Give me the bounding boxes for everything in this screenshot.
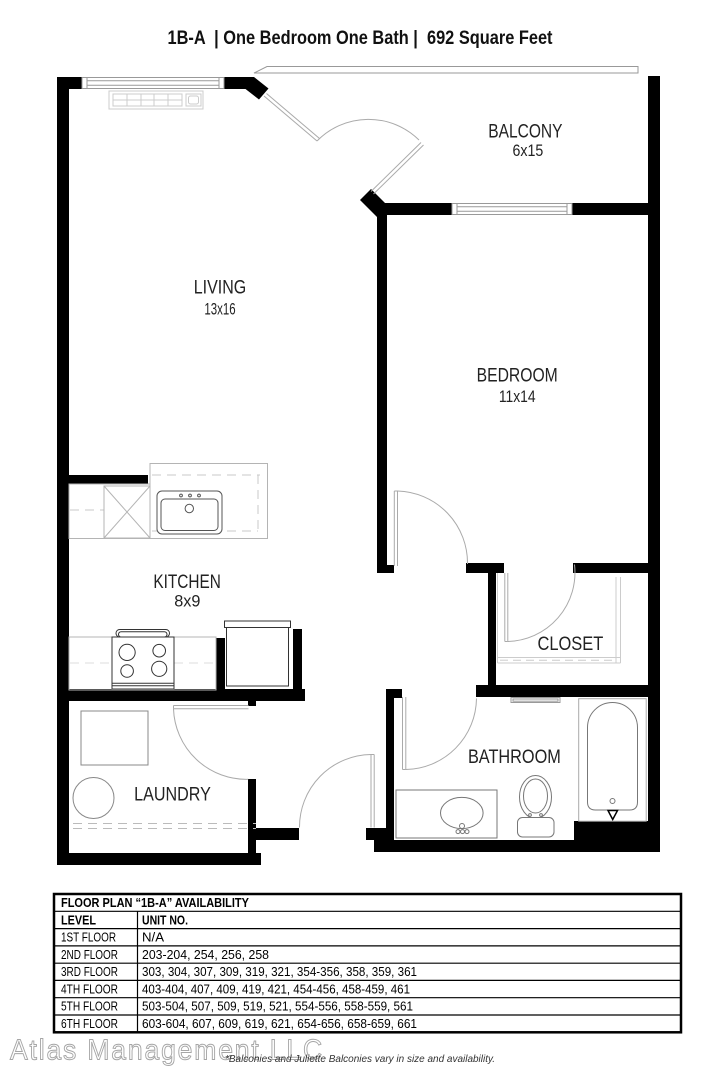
svg-text:LEVEL: LEVEL xyxy=(61,913,96,927)
svg-text:BALCONY: BALCONY xyxy=(488,122,562,143)
svg-text:*Balconies and Juliette Balcon: *Balconies and Juliette Balconies vary i… xyxy=(225,1053,495,1065)
svg-text:CLOSET: CLOSET xyxy=(538,634,604,655)
svg-text:BATHROOM: BATHROOM xyxy=(468,747,561,768)
svg-text:503-504, 507, 509, 519, 521, 5: 503-504, 507, 509, 519, 521, 554-556, 55… xyxy=(142,1000,413,1014)
svg-text:5TH FLOOR: 5TH FLOOR xyxy=(61,1000,118,1014)
svg-text:403-404, 407, 409, 419, 421, 4: 403-404, 407, 409, 419, 421, 454-456, 45… xyxy=(142,982,410,996)
svg-text:11x14: 11x14 xyxy=(499,387,536,406)
svg-text:LIVING: LIVING xyxy=(194,277,246,298)
svg-text:1B-A | One Bedroom One Bath |: 1B-A | One Bedroom One Bath | 692 Square… xyxy=(168,28,554,49)
svg-text:603-604, 607, 609, 619, 621, 6: 603-604, 607, 609, 619, 621, 654-656, 65… xyxy=(142,1017,417,1031)
svg-text:UNIT NO.: UNIT NO. xyxy=(142,913,188,927)
svg-text:KITCHEN: KITCHEN xyxy=(153,572,221,593)
svg-text:FLOOR PLAN “1B-A” AVAILABILITY: FLOOR PLAN “1B-A” AVAILABILITY xyxy=(61,896,250,910)
svg-text:LAUNDRY: LAUNDRY xyxy=(134,785,211,806)
svg-text:6x15: 6x15 xyxy=(513,141,544,160)
svg-text:13x16: 13x16 xyxy=(204,299,235,318)
svg-text:2ND FLOOR: 2ND FLOOR xyxy=(61,948,118,962)
svg-text:1ST FLOOR: 1ST FLOOR xyxy=(61,931,116,945)
svg-text:303, 304, 307, 309, 319, 321,: 303, 304, 307, 309, 319, 321, 354-356, 3… xyxy=(142,965,417,979)
svg-text:8x9: 8x9 xyxy=(174,592,200,611)
svg-text:4TH FLOOR: 4TH FLOOR xyxy=(61,982,118,996)
svg-text:BEDROOM: BEDROOM xyxy=(477,366,558,387)
svg-text:3RD FLOOR: 3RD FLOOR xyxy=(61,965,118,979)
svg-text:6TH FLOOR: 6TH FLOOR xyxy=(61,1017,118,1031)
svg-text:203-204, 254, 256, 258: 203-204, 254, 256, 258 xyxy=(142,948,269,962)
svg-text:N/A: N/A xyxy=(142,931,165,945)
